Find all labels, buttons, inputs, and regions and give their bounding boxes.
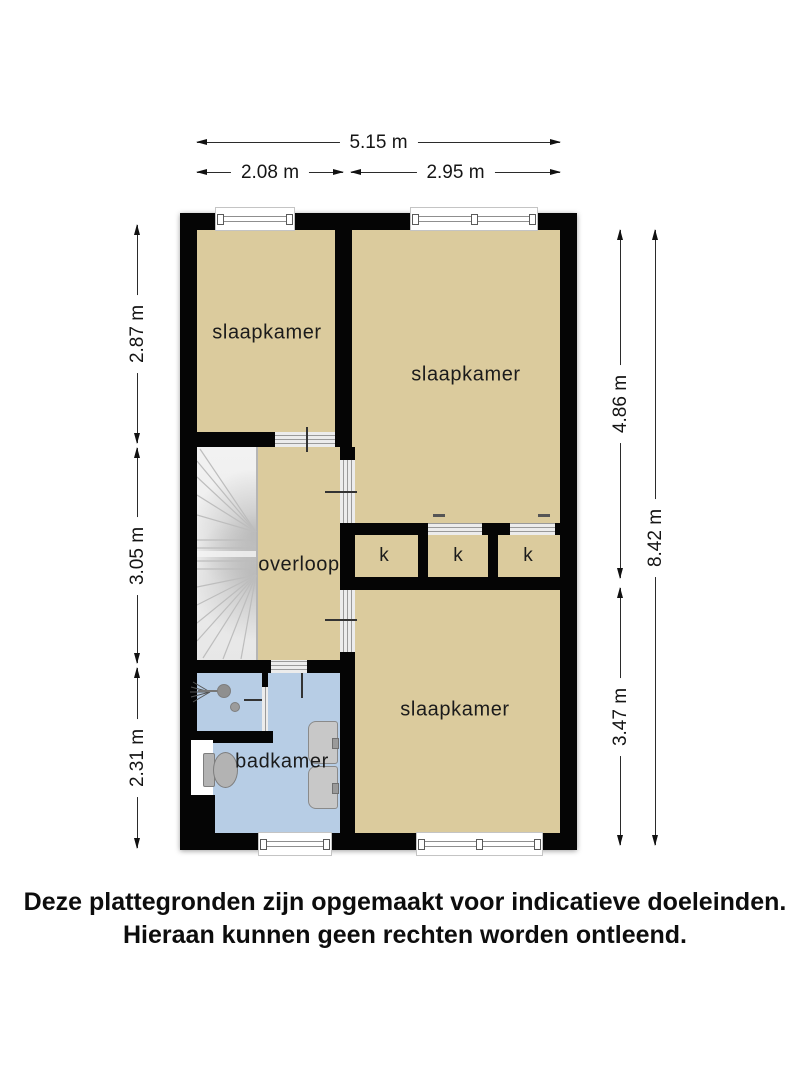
wall <box>262 673 268 687</box>
arrow-right-icon <box>333 169 344 175</box>
dimension-label: 4.86 m <box>610 365 632 443</box>
room-label-slaapkamer-bottom: slaapkamer <box>400 699 509 722</box>
arrow-down-icon <box>134 653 140 664</box>
door-swing-line <box>325 619 357 621</box>
door-swing-line <box>325 491 357 493</box>
room-label-kast-3: k <box>523 545 533 567</box>
window <box>410 207 538 231</box>
shower-glass-panel <box>262 687 268 731</box>
shower-spray-icon <box>190 679 212 705</box>
dimension-height-total: 8.42 m <box>655 230 656 845</box>
arrow-left-icon <box>196 139 207 145</box>
window-post <box>217 214 224 225</box>
window-post <box>534 839 541 850</box>
arrow-up-icon <box>134 447 140 458</box>
door-mark <box>538 514 550 517</box>
arrow-up-icon <box>617 229 623 240</box>
disclaimer-line-2: Hieraan kunnen geen rechten worden ontle… <box>0 919 810 952</box>
wall <box>335 213 352 447</box>
arrow-down-icon <box>134 838 140 849</box>
room-label-overloop: overloop <box>258 554 340 577</box>
dimension-label: 2.87 m <box>127 295 149 373</box>
wall <box>180 795 215 833</box>
arrow-right-icon <box>550 139 561 145</box>
faucet-icon <box>332 783 339 794</box>
dimension-label: 8.42 m <box>645 498 667 576</box>
shower-head-icon <box>217 684 231 698</box>
floorplan-canvas: slaapkamer slaapkamer overloop k k k sla… <box>180 213 577 850</box>
wall <box>418 535 428 577</box>
wall <box>180 660 355 673</box>
dimension-width-left: 2.08 m <box>197 172 343 173</box>
door-opening <box>275 432 335 447</box>
dimension-label: 2.95 m <box>416 162 494 184</box>
disclaimer-text: Deze plattegronden zijn opgemaakt voor i… <box>0 886 810 952</box>
window-post <box>412 214 419 225</box>
arrow-right-icon <box>550 169 561 175</box>
arrow-down-icon <box>652 835 658 846</box>
arrow-up-icon <box>134 667 140 678</box>
arrow-up-icon <box>652 229 658 240</box>
shower-drain-icon <box>230 702 240 712</box>
dimension-label: 3.05 m <box>127 516 149 594</box>
door-swing-line <box>306 427 308 452</box>
arrow-left-icon <box>350 169 361 175</box>
arrow-down-icon <box>617 568 623 579</box>
wall <box>488 535 498 577</box>
dimension-label: 5.15 m <box>339 132 417 154</box>
arrow-up-icon <box>617 587 623 598</box>
window <box>215 207 295 231</box>
arrow-up-icon <box>134 224 140 235</box>
dimension-label: 2.08 m <box>231 162 309 184</box>
dimension-width-right: 2.95 m <box>351 172 560 173</box>
room-label-kast-1: k <box>379 545 389 567</box>
closet-sliding-door <box>510 523 555 535</box>
arrow-down-icon <box>134 433 140 444</box>
arrow-down-icon <box>617 835 623 846</box>
dimension-label: 3.47 m <box>610 677 632 755</box>
dimension-height-bottom-left: 2.31 m <box>137 668 138 848</box>
dimension-height-top-right: 4.86 m <box>620 230 621 578</box>
window <box>416 832 543 856</box>
dimension-width-total: 5.15 m <box>197 142 560 143</box>
room-label-kast-2: k <box>453 545 463 567</box>
dimension-height-bottom-right: 3.47 m <box>620 588 621 845</box>
window-post <box>529 214 536 225</box>
door-opening <box>271 660 307 673</box>
window-post <box>418 839 425 850</box>
door-mark <box>433 514 445 517</box>
staircase <box>197 447 258 660</box>
disclaimer-line-1: Deze plattegronden zijn opgemaakt voor i… <box>0 886 810 919</box>
window <box>258 832 332 856</box>
closet-sliding-door <box>428 523 482 535</box>
wall <box>340 577 560 590</box>
window-post <box>260 839 267 850</box>
window-post <box>323 839 330 850</box>
shower-door-line <box>244 699 262 701</box>
window-post <box>286 214 293 225</box>
wall <box>197 432 275 447</box>
window-glass <box>261 841 329 847</box>
room-label-slaapkamer-top-right: slaapkamer <box>411 364 520 387</box>
window-post <box>476 839 483 850</box>
arrow-left-icon <box>196 169 207 175</box>
dimension-height-top-left: 2.87 m <box>137 225 138 443</box>
faucet-icon <box>332 738 339 749</box>
window-post <box>471 214 478 225</box>
dimension-height-mid-left: 3.05 m <box>137 448 138 663</box>
room-label-badkamer: badkamer <box>235 751 329 774</box>
door-swing-line <box>301 673 303 698</box>
window-glass <box>218 216 292 222</box>
stair-treads <box>197 447 258 660</box>
dimension-label: 2.31 m <box>127 719 149 797</box>
room-label-slaapkamer-top-left: slaapkamer <box>212 322 321 345</box>
